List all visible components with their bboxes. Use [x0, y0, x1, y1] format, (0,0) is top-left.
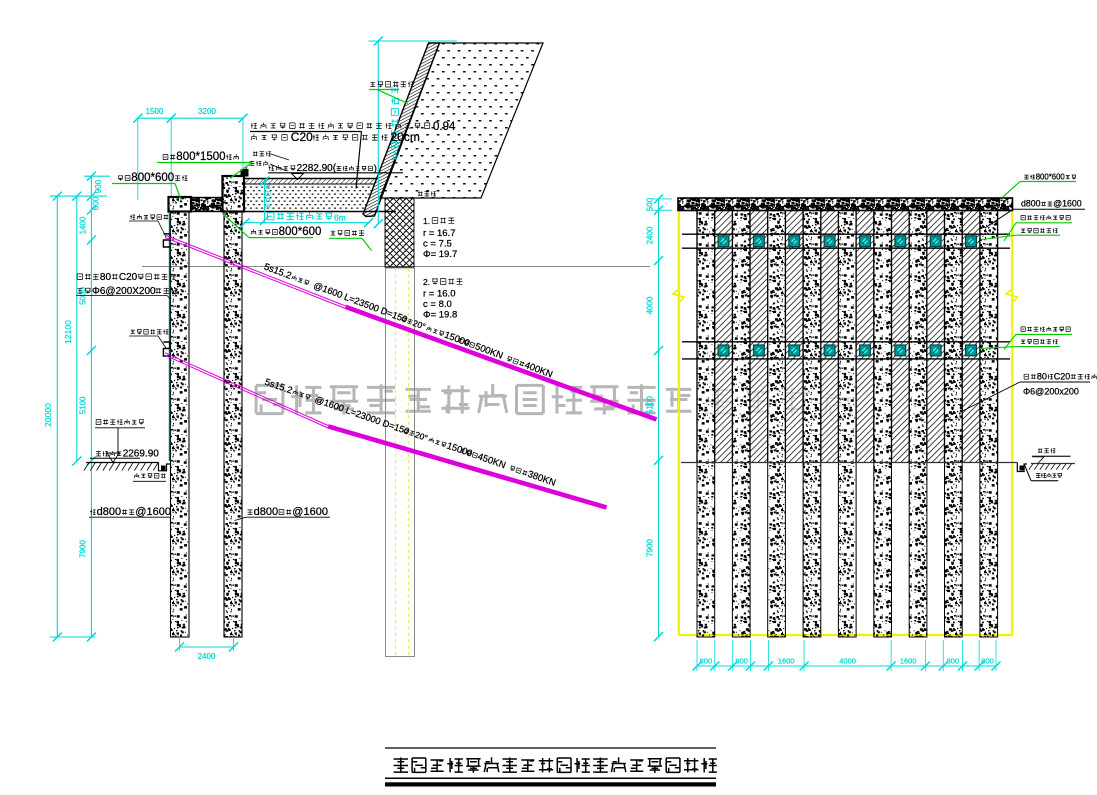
- svg-text:7900: 7900: [646, 539, 655, 557]
- svg-text:80: 80: [1037, 372, 1047, 382]
- svg-text:C20: C20: [291, 130, 313, 144]
- svg-text:Φ= 19.8: Φ= 19.8: [423, 310, 457, 321]
- svg-text:r = 16.0: r = 16.0: [423, 289, 455, 300]
- svg-text:@1600: @1600: [1053, 199, 1082, 209]
- svg-text:r = 16.7: r = 16.7: [423, 228, 455, 239]
- svg-text:2.: 2.: [423, 277, 430, 287]
- svg-text:C20: C20: [1054, 372, 1071, 382]
- svg-text:7900: 7900: [79, 540, 88, 558]
- svg-text:2400: 2400: [646, 226, 655, 244]
- svg-text:20000: 20000: [43, 403, 53, 427]
- svg-text:800*600: 800*600: [1036, 173, 1066, 182]
- svg-text:4000: 4000: [646, 296, 655, 314]
- svg-text:4000: 4000: [839, 657, 856, 666]
- svg-text:3200: 3200: [198, 107, 216, 116]
- svg-text:@1600: @1600: [135, 506, 171, 518]
- svg-text:c = 8.0: c = 8.0: [423, 299, 452, 310]
- svg-text:0.94: 0.94: [433, 121, 456, 133]
- svg-text:20cm: 20cm: [391, 130, 420, 144]
- svg-text:@1600: @1600: [292, 506, 328, 518]
- svg-text:2400: 2400: [198, 652, 216, 661]
- svg-text:800: 800: [947, 657, 960, 666]
- svg-text:Φ6@200x200: Φ6@200x200: [1023, 387, 1079, 397]
- svg-text:d800: d800: [254, 506, 278, 518]
- svg-text:800: 800: [700, 657, 713, 666]
- svg-text:800*600: 800*600: [131, 172, 174, 184]
- svg-text:800*1500: 800*1500: [176, 151, 225, 163]
- svg-text:1600: 1600: [900, 657, 917, 666]
- svg-text:900: 900: [94, 179, 103, 193]
- svg-text:80: 80: [100, 272, 112, 283]
- svg-text:1.: 1.: [423, 216, 430, 226]
- svg-text:1400: 1400: [79, 216, 88, 234]
- svg-text:d800: d800: [1021, 199, 1041, 209]
- svg-text:5100: 5100: [79, 396, 88, 414]
- svg-text:Φ= 19.7: Φ= 19.7: [423, 249, 457, 260]
- svg-text:5100: 5100: [646, 396, 655, 414]
- svg-text:6m: 6m: [334, 213, 346, 223]
- svg-text:800: 800: [981, 657, 994, 666]
- svg-text:1500: 1500: [146, 107, 164, 116]
- svg-text:800*600: 800*600: [279, 226, 322, 238]
- svg-text:C20: C20: [119, 272, 138, 283]
- svg-text:c = 7.5: c = 7.5: [423, 239, 452, 250]
- svg-text:800: 800: [735, 657, 748, 666]
- svg-text:d800: d800: [97, 506, 121, 518]
- svg-text:12100: 12100: [63, 320, 73, 344]
- svg-text:500: 500: [646, 197, 655, 211]
- svg-text:600: 600: [92, 196, 101, 210]
- svg-text:1600: 1600: [778, 657, 795, 666]
